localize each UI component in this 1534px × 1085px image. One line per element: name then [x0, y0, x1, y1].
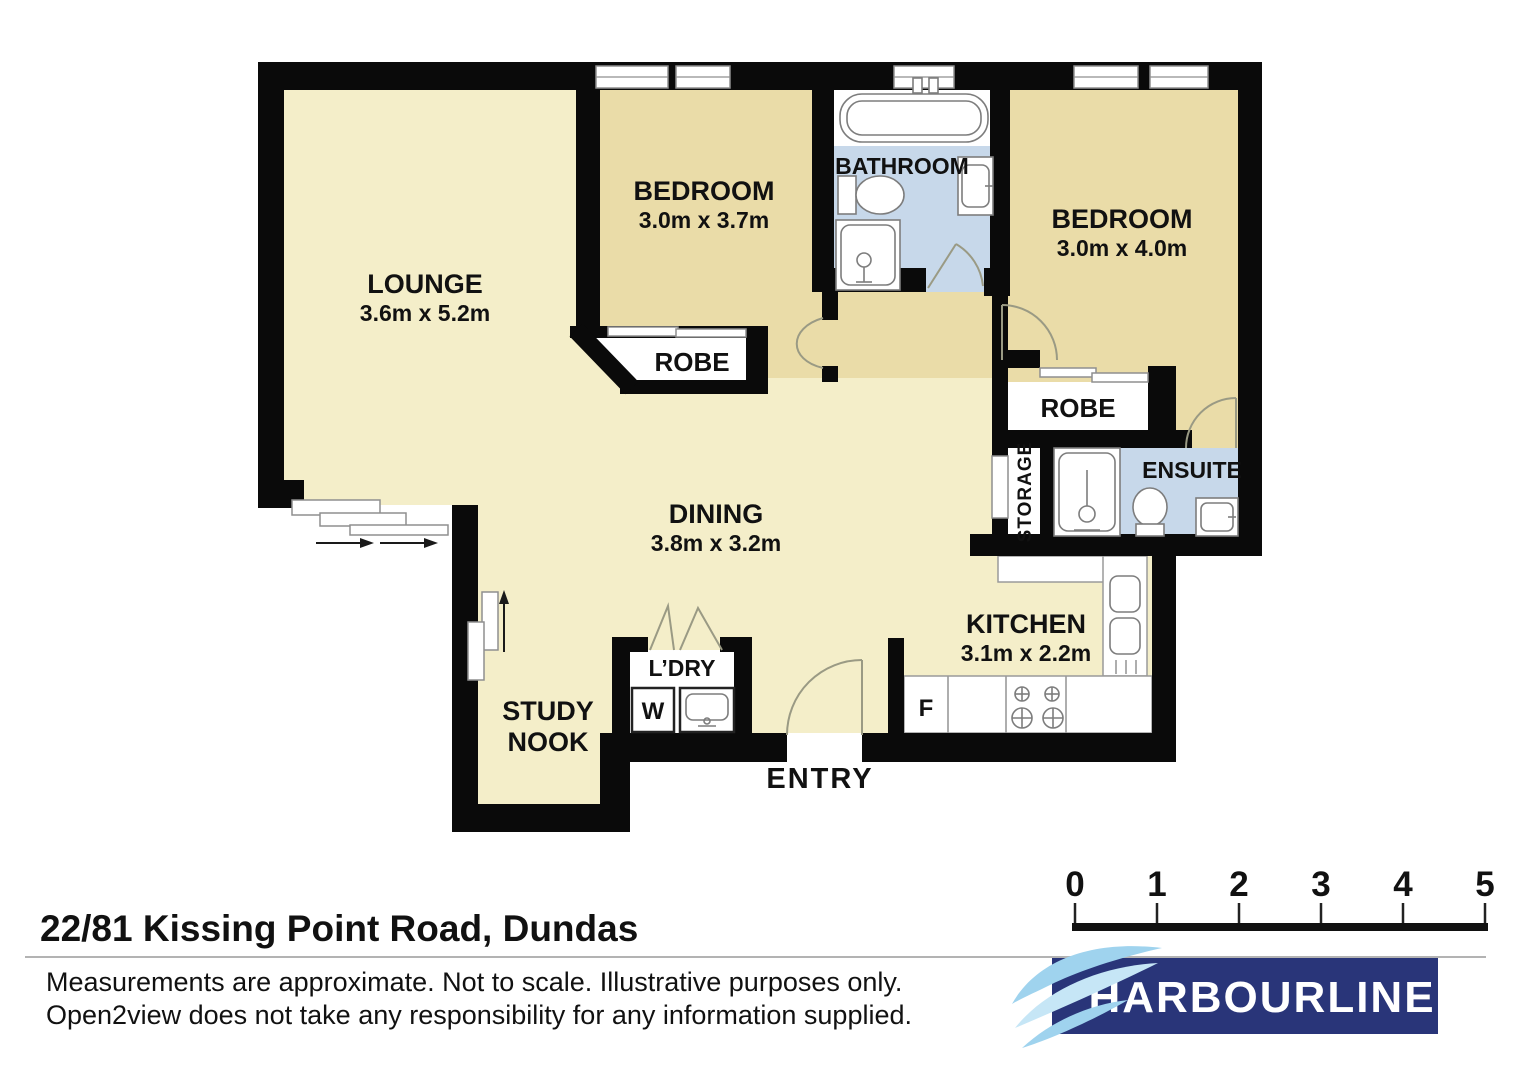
window	[676, 66, 730, 88]
kitchen-bench-bottom	[904, 676, 1152, 733]
scale-bar: 0 1 2 3 4 5	[1065, 865, 1494, 931]
disclaimer-line1: Measurements are approximate. Not to sca…	[46, 967, 902, 997]
windows	[596, 66, 1208, 88]
lounge-dims: 3.6m x 5.2m	[360, 300, 490, 326]
fridge-label: F	[919, 695, 934, 722]
dining-label: DINING	[669, 499, 764, 529]
studynook-label-line2: NOOK	[508, 727, 590, 757]
brand-logo: HARBOURLINE	[1012, 946, 1438, 1048]
toilet-icon	[838, 176, 904, 214]
scale-tick-2: 2	[1229, 865, 1248, 904]
scale-tick-5: 5	[1475, 865, 1494, 904]
balcony-sliding-door-icon	[292, 500, 448, 548]
floorplan-svg: LOUNGE 3.6m x 5.2m BEDROOM 3.0m x 3.7m B…	[0, 0, 1534, 1085]
ensuite-toilet-icon	[1133, 488, 1167, 536]
bedroom2-label: BEDROOM	[1052, 204, 1193, 234]
window	[894, 66, 954, 88]
disclaimer-line2: Open2view does not take any responsibili…	[46, 1000, 912, 1030]
robe1-sliding-door-icon	[608, 327, 746, 337]
floorplan-page: LOUNGE 3.6m x 5.2m BEDROOM 3.0m x 3.7m B…	[0, 0, 1534, 1085]
kitchen-sink-unit	[1103, 556, 1147, 676]
address-title: 22/81 Kissing Point Road, Dundas	[40, 908, 638, 949]
scale-tick-4: 4	[1393, 865, 1413, 904]
kitchen-dims: 3.1m x 2.2m	[961, 640, 1091, 666]
scale-tick-3: 3	[1311, 865, 1330, 904]
robe2-label: ROBE	[1040, 393, 1115, 423]
bathroom-label: BATHROOM	[835, 153, 969, 179]
window	[1150, 66, 1208, 88]
entry-label: ENTRY	[766, 763, 873, 795]
lounge-label: LOUNGE	[367, 269, 483, 299]
scale-tick-0: 0	[1065, 865, 1084, 904]
bedroom1-label: BEDROOM	[634, 176, 775, 206]
logo-text: HARBOURLINE	[1088, 973, 1435, 1022]
bedroom2-dims: 3.0m x 4.0m	[1057, 235, 1187, 261]
window	[1074, 66, 1138, 88]
laundry-label: L’DRY	[649, 655, 716, 681]
laundry-tub-icon	[680, 688, 734, 732]
storage-label: STORAGE	[1015, 442, 1036, 543]
storage-door	[992, 456, 1008, 518]
ensuite-label: ENSUITE	[1142, 457, 1242, 483]
shower-icon	[836, 220, 900, 290]
scale-tick-1: 1	[1147, 865, 1166, 904]
robe1-label: ROBE	[654, 347, 729, 377]
scale-bar-line	[1072, 923, 1488, 931]
kitchen-bench-top	[998, 556, 1104, 582]
studynook-label-line1: STUDY	[502, 696, 594, 726]
kitchen-label: KITCHEN	[966, 609, 1086, 639]
bedroom1-dims: 3.0m x 3.7m	[639, 207, 769, 233]
washer-label: W	[642, 698, 665, 725]
dining-dims: 3.8m x 3.2m	[651, 530, 781, 556]
window	[596, 66, 668, 88]
ensuite-shower-icon	[1054, 448, 1120, 536]
ensuite-vanity-icon	[1196, 498, 1238, 536]
